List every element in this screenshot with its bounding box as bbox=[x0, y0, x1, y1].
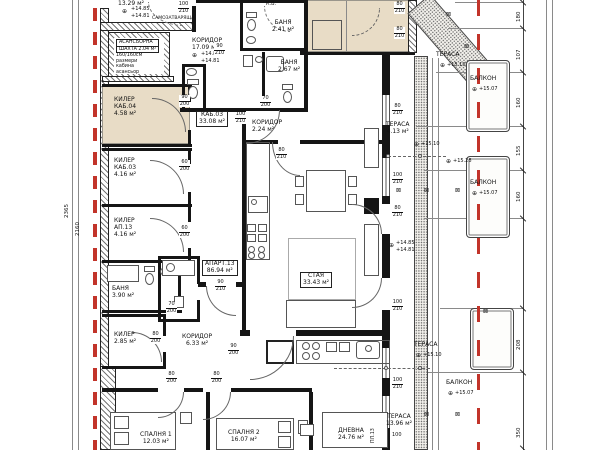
wall bbox=[304, 0, 308, 112]
wall bbox=[188, 206, 191, 222]
leader-dot bbox=[384, 366, 388, 370]
kiler-kab03-label: КИЛЕР КАБ.03 4.16 м² bbox=[114, 158, 136, 179]
spalnya1-label: СПАЛНЯ 1 12.03 м² bbox=[140, 432, 172, 446]
door-size-tag: 90200 bbox=[179, 95, 190, 107]
leader-line bbox=[334, 368, 430, 369]
door-size-tag: 90200 bbox=[228, 344, 239, 356]
corridor224-label: КОРИДОР 2.24 м² bbox=[252, 120, 282, 134]
dnevna-label: ДНЕВНА 24.76 м² bbox=[338, 428, 364, 442]
wall bbox=[102, 204, 192, 207]
level-mark-icon: ⊕ bbox=[389, 243, 394, 249]
rug-outline bbox=[288, 238, 356, 300]
section-marker-icon: ⊠ bbox=[464, 44, 469, 50]
wall bbox=[240, 48, 307, 51]
door-size-tag: 100210 bbox=[178, 2, 189, 14]
wall-below-shaft bbox=[102, 76, 174, 82]
stove-burner bbox=[258, 224, 267, 232]
wall bbox=[203, 64, 206, 112]
banya390-label: БАНЯ 3.90 м² bbox=[112, 286, 134, 300]
right-dimension-6: 208 bbox=[516, 340, 522, 351]
level-mark-icon: ⊕ bbox=[446, 159, 451, 165]
section-marker-icon: ⊠ bbox=[396, 188, 401, 194]
balkon3-elevation: +15.07 bbox=[455, 390, 474, 396]
leader-dot bbox=[418, 154, 422, 158]
level-mark-icon: ⊕ bbox=[122, 9, 127, 15]
right-dimension-7: 350 bbox=[516, 428, 522, 439]
stair-elevation-2: +14.81 bbox=[131, 13, 150, 19]
wall bbox=[188, 192, 191, 205]
wall bbox=[102, 388, 158, 392]
kv-label: К.В. bbox=[266, 1, 276, 7]
window bbox=[382, 158, 390, 196]
leader-line bbox=[388, 156, 446, 157]
door-jamb bbox=[198, 282, 206, 287]
toilet-tank bbox=[187, 79, 199, 85]
dim-100: 100 bbox=[392, 432, 402, 438]
leader-dot bbox=[418, 366, 422, 370]
regulation-line-right bbox=[477, 0, 480, 450]
wall bbox=[102, 84, 192, 87]
wall bbox=[188, 130, 191, 146]
property-line-left-outer bbox=[72, 0, 73, 450]
chair bbox=[295, 176, 304, 187]
pillow bbox=[278, 421, 291, 433]
corridor17-elevation-2: +14.81 bbox=[201, 58, 220, 64]
section-marker-icon: ⊠ bbox=[455, 188, 460, 194]
stove-burner bbox=[247, 234, 256, 242]
level-mark-icon: ⊕ bbox=[440, 63, 445, 69]
stove-burner bbox=[312, 342, 320, 350]
chair bbox=[348, 176, 357, 187]
sink-icon bbox=[186, 68, 197, 76]
wall bbox=[296, 330, 390, 336]
wall bbox=[158, 256, 161, 322]
dim-guide bbox=[455, 2, 523, 3]
right-dimension-3: 160 bbox=[516, 98, 522, 109]
terasa413-elevation: +15.10 bbox=[421, 141, 440, 147]
balkon3-label: БАЛКОН bbox=[446, 380, 472, 387]
toilet-icon bbox=[247, 19, 256, 31]
dim-guide bbox=[448, 28, 523, 29]
kiler285-label: КИЛЕР 2.85 м² bbox=[114, 332, 136, 346]
toilet-icon bbox=[145, 273, 154, 285]
window-size-tag: 80210 bbox=[394, 2, 405, 14]
level-mark-icon: ⊕ bbox=[448, 391, 453, 397]
stove-burner bbox=[302, 342, 310, 350]
level-mark-icon: ⊕ bbox=[472, 191, 477, 197]
terasa-bottom-label: ТЕРАСА bbox=[414, 342, 437, 349]
section-marker-icon: ⊠ bbox=[424, 188, 429, 194]
wall bbox=[197, 256, 200, 284]
terrace-railing bbox=[414, 56, 428, 450]
kiler-ap13-label: КИЛЕР АП.13 4.16 м² bbox=[114, 218, 136, 239]
floor-plan: 2365 2160 АСАНСЬОРНА ШАХТА 2.04 м² 160/1… bbox=[0, 0, 600, 450]
exterior-wall-right bbox=[382, 234, 390, 278]
section-marker-icon: ⊠ bbox=[455, 412, 460, 418]
right-dimension-2: 107 bbox=[516, 50, 522, 61]
spalnya2-door-arc bbox=[203, 392, 231, 420]
exterior-wall-right bbox=[382, 55, 390, 95]
kiler-kab04-label: КИЛЕР КАБ.04 4.58 м² bbox=[114, 97, 136, 118]
kab03-label: КАБ.03 33.08 м² bbox=[196, 111, 228, 127]
wall bbox=[184, 388, 203, 392]
door-size-tag: 80200 bbox=[150, 332, 161, 344]
stair-elevation-1: +14.85 bbox=[131, 6, 150, 12]
level-mark-icon: ⊕ bbox=[472, 87, 477, 93]
door-size-tag: 80200 bbox=[166, 372, 177, 384]
wall bbox=[240, 0, 243, 50]
balkon2-elevation: +15.07 bbox=[479, 190, 498, 196]
terrace-door-arc bbox=[352, 278, 382, 308]
sofa bbox=[286, 300, 356, 328]
cabinet bbox=[364, 128, 379, 168]
dim-guide bbox=[428, 372, 523, 373]
dining-table bbox=[306, 170, 346, 212]
kitchen-sink-icon bbox=[248, 196, 268, 213]
hob-circle bbox=[248, 252, 255, 259]
wall bbox=[163, 314, 166, 336]
wall bbox=[280, 108, 308, 112]
wall bbox=[158, 256, 200, 259]
door-size-tag: 80210 bbox=[276, 148, 287, 160]
pillow bbox=[278, 436, 291, 448]
wall bbox=[240, 330, 250, 336]
window-size-tag: 100210 bbox=[392, 173, 403, 185]
left-dimension-1: 2365 bbox=[64, 204, 70, 218]
level-mark-icon: ⊕ bbox=[416, 353, 421, 359]
window-size-tag: 80210 bbox=[394, 27, 405, 39]
faucet-dot bbox=[365, 345, 372, 352]
banya267-label: БАНЯ 2.67 м² bbox=[278, 60, 300, 74]
door-size-tag: 60200 bbox=[179, 160, 190, 172]
right-dimension-5: 160 bbox=[516, 192, 522, 203]
stove-burner bbox=[258, 234, 267, 242]
window-size-tag: 80210 bbox=[392, 104, 403, 116]
door-size-tag: 70200 bbox=[260, 96, 271, 108]
terasa-bottom-elevation: +15.10 bbox=[423, 352, 442, 358]
wall-bedroom-divider bbox=[309, 392, 313, 450]
section-marker-icon: ⊠ bbox=[446, 12, 451, 18]
banya241-label: БАНЯ 2.41 м² bbox=[272, 20, 294, 34]
level-mark-icon: ⊕ bbox=[414, 142, 419, 148]
terasa-top-elevation: +15.10 bbox=[447, 62, 466, 68]
slab-edge-line bbox=[432, 58, 433, 450]
door-size-tag: 80200 bbox=[211, 372, 222, 384]
wall bbox=[158, 319, 200, 322]
left-dimension-2: 2160 bbox=[75, 222, 81, 236]
elevator-shaft-label: АСАНСЬОРНА ШАХТА 2.04 м² 160/160см разме… bbox=[116, 39, 159, 75]
apart13-label: АПАРТ.13 86.94 м² bbox=[202, 260, 238, 276]
bathtub bbox=[107, 265, 139, 282]
door-size-tag: 90210 bbox=[214, 44, 225, 56]
slab-edge-line bbox=[438, 58, 439, 450]
wall bbox=[163, 352, 166, 369]
adjacent-unit-furniture bbox=[312, 20, 342, 50]
spalnya2-label: СПАЛНЯ 2 16.07 м² bbox=[228, 430, 260, 444]
washing-machine-icon bbox=[243, 55, 253, 67]
door-size-tag: 60200 bbox=[179, 226, 190, 238]
sink-icon bbox=[255, 56, 263, 63]
regulation-line-left bbox=[93, 8, 97, 450]
balcony-2 bbox=[466, 156, 510, 238]
hob-circle bbox=[258, 252, 265, 259]
window-size-tag: 80210 bbox=[392, 206, 403, 218]
pillow bbox=[114, 432, 129, 445]
coffee-table bbox=[300, 424, 314, 436]
wall bbox=[102, 144, 192, 147]
balcony-1 bbox=[466, 60, 510, 132]
section-marker-icon: ⊠ bbox=[424, 412, 429, 418]
leader-dot bbox=[386, 154, 390, 158]
exterior-wall-right bbox=[382, 378, 390, 396]
dimension-line-right bbox=[523, 0, 524, 450]
level-mark-icon: ⊕ bbox=[192, 53, 197, 59]
wall-elevation-1: +14.85 bbox=[396, 240, 415, 246]
right-dimension-4: 155 bbox=[516, 146, 522, 157]
sink-icon bbox=[166, 263, 175, 272]
wall bbox=[102, 366, 166, 369]
adjacent-unit-partition bbox=[346, 1, 347, 51]
wall-top-center bbox=[196, 0, 308, 3]
elevation-1528: +15.28 bbox=[453, 158, 472, 164]
oven-box bbox=[339, 342, 350, 352]
section-marker-icon: ⊠ bbox=[483, 309, 488, 315]
balkon1-label: БАЛКОН bbox=[470, 76, 496, 83]
stove-burner bbox=[312, 352, 320, 360]
pl13-label: ПЛ.13 bbox=[371, 428, 376, 443]
property-line-right-inner bbox=[552, 0, 553, 450]
oven-box bbox=[326, 342, 337, 352]
self-closing-note: САМОЗАТВАРЯЩА bbox=[152, 16, 194, 21]
terasa1396-label: ТЕРАСА 13.96 м² bbox=[386, 414, 412, 428]
staya-label: СТАЯ 33.43 м² bbox=[300, 272, 332, 288]
kitchen-door-arc bbox=[250, 336, 294, 380]
wall bbox=[102, 148, 192, 151]
terasa-top-label: ТЕРАСА bbox=[436, 52, 459, 59]
faucet-dot bbox=[251, 199, 257, 205]
door-size-tag: 100210 bbox=[235, 112, 246, 124]
terasa413-label: ТЕРАСА 4.13 м² bbox=[386, 122, 409, 136]
nightstand bbox=[180, 412, 192, 424]
door-size-tag: 70200 bbox=[166, 302, 177, 314]
chair bbox=[295, 194, 304, 205]
wall bbox=[102, 314, 166, 317]
wall-elevation-2: +14.81 bbox=[396, 247, 415, 253]
stove-burner bbox=[302, 352, 310, 360]
sink-icon bbox=[246, 36, 256, 44]
corridor633-label: КОРИДОР 6.33 м² bbox=[182, 334, 212, 348]
right-dimension-1: 180 bbox=[516, 12, 522, 23]
property-line-right-outer bbox=[546, 0, 547, 450]
toilet-icon bbox=[283, 91, 292, 103]
toilet-tank bbox=[246, 12, 257, 18]
wall bbox=[231, 388, 312, 392]
pillow bbox=[114, 416, 129, 429]
balkon1-elevation: +15.07 bbox=[479, 86, 498, 92]
window-size-tag: 100210 bbox=[392, 300, 403, 312]
window-size-tag: 100210 bbox=[392, 378, 403, 390]
stove-burner bbox=[247, 224, 256, 232]
balkon2-label: БАЛКОН bbox=[470, 180, 496, 187]
toilet-tank bbox=[282, 84, 293, 90]
toilet-tank bbox=[144, 266, 155, 272]
door-size-tag: 90210 bbox=[215, 280, 226, 292]
exterior-wall-right bbox=[382, 196, 390, 204]
door-jamb bbox=[236, 282, 243, 287]
